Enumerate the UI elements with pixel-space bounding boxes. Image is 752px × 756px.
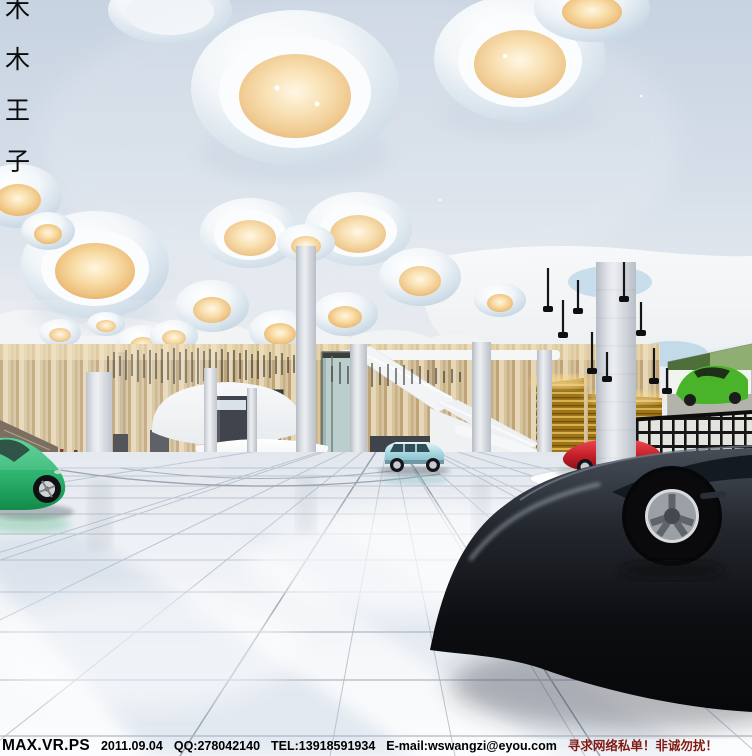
bell-light: [474, 283, 526, 317]
footer-email: E-mail:wswangzi@eyou.com: [386, 739, 557, 753]
footer-note: 寻求网络私单！非诚勿扰！: [568, 735, 718, 754]
bell-light: [312, 292, 378, 336]
footer-brand: MAX.VR.PS: [2, 737, 90, 755]
scene-graphics: [0, 0, 752, 756]
showroom-render: 木 木 王 子 MAX.VR.PS 2011.09.04 QQ:27804214…: [0, 0, 752, 756]
light-haze: [40, 0, 680, 290]
watermark-char: 木: [5, 47, 30, 72]
watermark-char: 王: [5, 98, 30, 123]
footer-tel: TEL:13918591934: [271, 739, 375, 753]
bell-light: [21, 212, 75, 250]
blue-suv: [378, 442, 450, 485]
haze-overlay: [0, 300, 220, 470]
watermark-char: 木: [5, 0, 30, 21]
footer-qq: QQ:278042140: [174, 739, 260, 753]
credit-footer: MAX.VR.PS 2011.09.04 QQ:278042140 TEL:13…: [0, 735, 752, 755]
footer-date: 2011.09.04: [101, 739, 163, 753]
watermark-char: 子: [5, 149, 30, 174]
watermark: 木 木 王 子: [5, 0, 30, 174]
